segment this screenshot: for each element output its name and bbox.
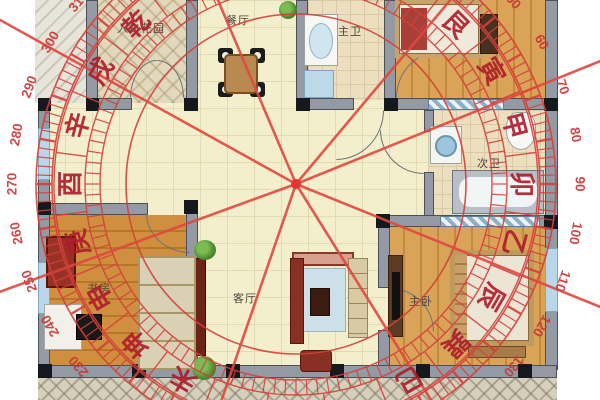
armchair — [300, 350, 332, 372]
bathtub — [452, 170, 544, 214]
second-bath-wall-b — [424, 172, 434, 218]
entry-garden-wall-right — [186, 0, 198, 110]
column — [384, 98, 398, 111]
window-right-master — [545, 248, 558, 312]
column — [544, 98, 558, 111]
column — [184, 200, 198, 214]
master-bedroom-closet-hatch — [440, 216, 540, 227]
window-left-upper — [38, 128, 50, 180]
column — [376, 214, 390, 228]
washing-machine — [430, 126, 462, 164]
column — [38, 364, 52, 378]
bed-second-bedroom — [395, 0, 483, 58]
column — [226, 364, 240, 378]
floorplan-with-luopan: 入户花园 餐厅 主卫 次卫 主卧 客厅 书房 艮寅甲卯乙辰巽巳未坤申庚酉辛戌乾5… — [0, 0, 600, 400]
column — [86, 98, 99, 111]
bed-footboard — [468, 346, 526, 358]
stool-study — [76, 314, 102, 340]
entry-garden-wall-left — [86, 0, 98, 110]
dining-room-label: 餐厅 — [226, 12, 250, 28]
column — [518, 364, 532, 378]
floor-plan: 入户花园 餐厅 主卫 次卫 主卧 客厅 书房 — [0, 0, 600, 400]
plant — [279, 1, 297, 19]
exterior-walkway — [35, 0, 88, 103]
bedroom2-window-hatch — [428, 99, 504, 110]
outer-wall-bottom — [38, 365, 557, 378]
bathroom-sink — [304, 14, 338, 66]
second-bath-label: 次卫 — [477, 155, 501, 171]
study-top-wall — [38, 203, 148, 215]
master-bath-label: 主卫 — [338, 23, 362, 39]
bookshelf — [348, 258, 368, 338]
wardrobe-study — [46, 236, 76, 288]
shower-tray — [304, 70, 334, 98]
column — [330, 364, 344, 378]
column — [416, 364, 430, 378]
coffee-table — [310, 288, 330, 316]
sofa-left — [290, 258, 304, 344]
column — [38, 98, 51, 111]
living-room-label: 客厅 — [233, 290, 257, 306]
toilet — [506, 112, 536, 150]
sofa-study — [138, 256, 196, 370]
column — [38, 202, 51, 215]
plant — [194, 240, 216, 260]
bed-master-bedroom — [450, 250, 534, 346]
wardrobe-second-bedroom — [480, 14, 498, 54]
dining-table — [224, 54, 258, 94]
column — [296, 98, 310, 111]
column — [184, 98, 198, 111]
study-label: 书房 — [87, 280, 111, 296]
outer-wall-right — [545, 0, 558, 370]
terrace-floor — [38, 377, 557, 400]
column — [544, 215, 558, 229]
entry-garden-label: 入户花园 — [117, 20, 165, 36]
tv-cabinet-master — [388, 255, 403, 337]
master-bedroom-label: 主卧 — [409, 293, 433, 309]
